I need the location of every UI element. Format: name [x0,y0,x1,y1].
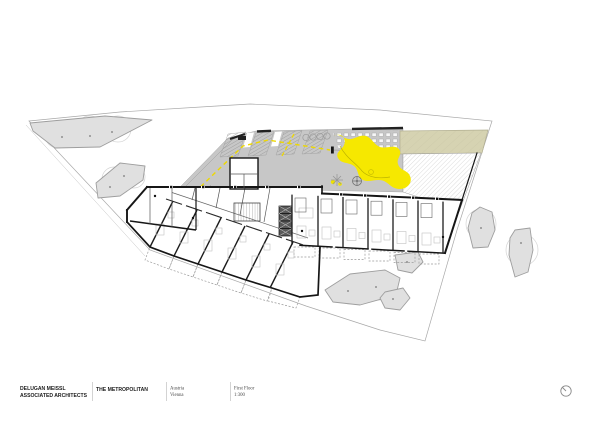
project-name: THE METROPOLITAN [96,387,148,393]
sheet-scale: 1:300 [234,393,246,398]
bush [30,116,152,148]
location-city: Vienna [170,393,184,398]
drawing-sheet: DELUGAN MEISSL ASSOCIATED ARCHITECTS THE… [0,0,600,424]
elevator-shafts [279,206,292,236]
floor-plan-drawing [0,0,600,374]
sheet-info: First Floor 1:300 [234,387,255,399]
firm-name: DELUGAN MEISSL ASSOCIATED ARCHITECTS [20,386,88,399]
north-arrow-icon [561,386,571,396]
title-block: DELUGAN MEISSL ASSOCIATED ARCHITECTS THE… [0,374,600,424]
planted-roof-area [400,130,488,154]
firm-name-line2: ASSOCIATED ARCHITECTS [20,393,88,399]
sheet-name: First Floor [234,387,255,392]
wheel-icon [353,177,362,186]
project-location: Austria Vienna [170,387,185,399]
bush [96,163,145,198]
firm-name-line1: DELUGAN MEISSL [20,386,66,392]
location-country: Austria [170,387,185,392]
bush [509,228,533,277]
